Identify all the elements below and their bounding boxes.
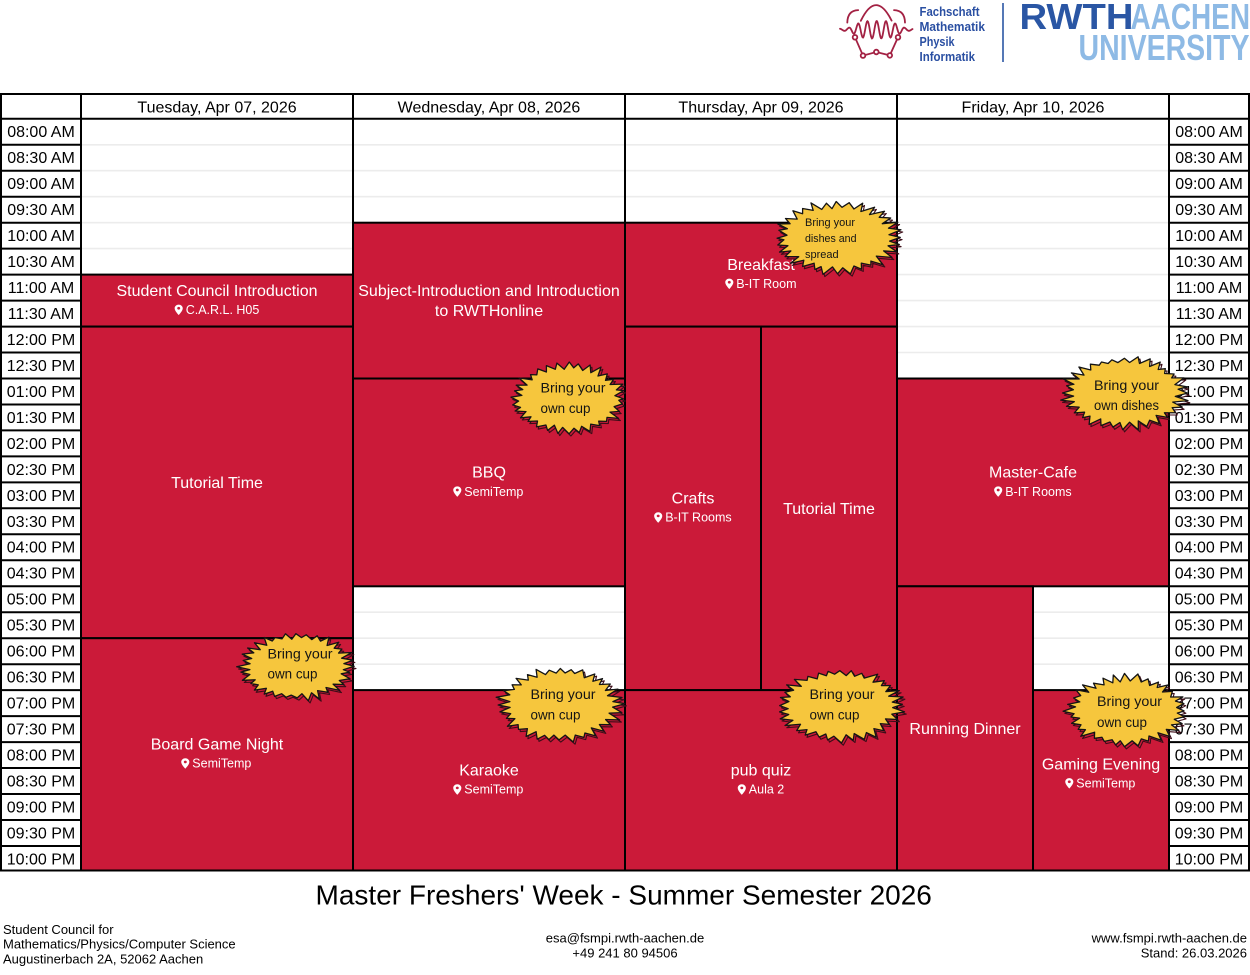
svg-text:Wednesday, Apr 08, 2026: Wednesday, Apr 08, 2026 xyxy=(398,99,581,116)
svg-text:Bring your: Bring your xyxy=(541,379,606,395)
svg-text:05:30 PM: 05:30 PM xyxy=(7,618,75,635)
svg-text:own cup: own cup xyxy=(268,666,318,682)
svg-text:SemiTemp: SemiTemp xyxy=(464,783,523,797)
svg-text:08:00 PM: 08:00 PM xyxy=(7,748,75,765)
svg-text:07:00 PM: 07:00 PM xyxy=(7,696,75,713)
svg-text:09:00 AM: 09:00 AM xyxy=(7,176,75,193)
svg-text:SemiTemp: SemiTemp xyxy=(464,485,523,499)
svg-text:Master-Cafe: Master-Cafe xyxy=(989,465,1077,482)
svg-text:SemiTemp: SemiTemp xyxy=(1076,777,1135,791)
svg-text:12:00 PM: 12:00 PM xyxy=(7,332,75,349)
svg-text:own cup: own cup xyxy=(810,706,860,722)
svg-text:Student Council Introduction: Student Council Introduction xyxy=(116,283,317,300)
svg-text:10:00 AM: 10:00 AM xyxy=(1175,228,1243,245)
svg-text:B-IT Rooms: B-IT Rooms xyxy=(1005,485,1071,499)
svg-text:Physik: Physik xyxy=(920,34,956,49)
svg-text:Tutorial Time: Tutorial Time xyxy=(783,501,875,518)
svg-text:07:30 PM: 07:30 PM xyxy=(7,722,75,739)
svg-text:09:30 PM: 09:30 PM xyxy=(7,825,75,842)
svg-text:Mathematik: Mathematik xyxy=(920,19,986,34)
svg-text:Tuesday, Apr 07, 2026: Tuesday, Apr 07, 2026 xyxy=(137,99,296,116)
svg-text:08:30 PM: 08:30 PM xyxy=(7,773,75,790)
svg-text:01:30 PM: 01:30 PM xyxy=(1175,410,1243,427)
svg-text:06:30 PM: 06:30 PM xyxy=(7,670,75,687)
svg-text:07:00 PM: 07:00 PM xyxy=(1175,696,1243,713)
svg-text:spread: spread xyxy=(805,249,839,261)
svg-text:03:30 PM: 03:30 PM xyxy=(1175,514,1243,531)
svg-text:Master Freshers' Week - Summer: Master Freshers' Week - Summer Semester … xyxy=(316,879,932,910)
svg-text:Karaoke: Karaoke xyxy=(459,763,519,780)
svg-text:Bring your: Bring your xyxy=(1097,693,1162,709)
svg-text:04:00 PM: 04:00 PM xyxy=(1175,540,1243,557)
svg-text:Thursday, Apr 09, 2026: Thursday, Apr 09, 2026 xyxy=(678,99,843,116)
svg-text:Informatik: Informatik xyxy=(920,49,976,64)
svg-text:05:00 PM: 05:00 PM xyxy=(1175,592,1243,609)
svg-text:09:00 AM: 09:00 AM xyxy=(1175,176,1243,193)
svg-text:Bring your: Bring your xyxy=(268,646,333,662)
svg-text:+49 241 80 94506: +49 241 80 94506 xyxy=(572,945,677,960)
svg-text:10:30 AM: 10:30 AM xyxy=(1175,254,1243,271)
svg-text:06:00 PM: 06:00 PM xyxy=(7,644,75,661)
svg-text:06:30 PM: 06:30 PM xyxy=(1175,670,1243,687)
svg-text:02:00 PM: 02:00 PM xyxy=(1175,436,1243,453)
svg-text:Running Dinner: Running Dinner xyxy=(909,721,1021,738)
svg-text:own cup: own cup xyxy=(531,706,581,722)
svg-text:01:30 PM: 01:30 PM xyxy=(7,410,75,427)
svg-text:06:00 PM: 06:00 PM xyxy=(1175,644,1243,661)
svg-text:Augustinerbach 2A, 52062 Aache: Augustinerbach 2A, 52062 Aachen xyxy=(3,952,203,967)
svg-text:B-IT Rooms: B-IT Rooms xyxy=(665,511,731,525)
svg-text:10:30 AM: 10:30 AM xyxy=(7,254,75,271)
svg-text:05:00 PM: 05:00 PM xyxy=(7,592,75,609)
svg-text:04:30 PM: 04:30 PM xyxy=(7,566,75,583)
svg-text:Student Council for: Student Council for xyxy=(3,922,114,937)
svg-text:04:00 PM: 04:00 PM xyxy=(7,540,75,557)
svg-text:Gaming Evening: Gaming Evening xyxy=(1042,757,1160,774)
svg-text:01:00 PM: 01:00 PM xyxy=(7,384,75,401)
svg-text:to RWTHonline: to RWTHonline xyxy=(435,303,543,320)
svg-text:Board Game Night: Board Game Night xyxy=(151,737,284,754)
svg-text:Bring your: Bring your xyxy=(810,686,875,702)
svg-text:12:30 PM: 12:30 PM xyxy=(7,358,75,375)
svg-text:own cup: own cup xyxy=(1097,714,1147,730)
svg-text:05:30 PM: 05:30 PM xyxy=(1175,618,1243,635)
svg-text:02:00 PM: 02:00 PM xyxy=(7,436,75,453)
svg-text:BBQ: BBQ xyxy=(472,465,506,482)
svg-text:own dishes: own dishes xyxy=(1094,397,1159,413)
svg-text:02:30 PM: 02:30 PM xyxy=(7,462,75,479)
svg-text:04:30 PM: 04:30 PM xyxy=(1175,566,1243,583)
svg-text:12:30 PM: 12:30 PM xyxy=(1175,358,1243,375)
svg-text:esa@fsmpi.rwth-aachen.de: esa@fsmpi.rwth-aachen.de xyxy=(546,931,704,946)
svg-text:03:00 PM: 03:00 PM xyxy=(7,488,75,505)
svg-text:12:00 PM: 12:00 PM xyxy=(1175,332,1243,349)
svg-text:C.A.R.L. H05: C.A.R.L. H05 xyxy=(186,303,260,317)
svg-text:08:30 AM: 08:30 AM xyxy=(7,150,75,167)
svg-text:Stand: 26.03.2026: Stand: 26.03.2026 xyxy=(1141,945,1247,960)
svg-text:Subject-Introduction and Intro: Subject-Introduction and Introduction xyxy=(358,283,620,300)
svg-text:09:30 PM: 09:30 PM xyxy=(1175,825,1243,842)
svg-text:Fachschaft: Fachschaft xyxy=(920,4,981,19)
svg-text:Bring your: Bring your xyxy=(531,686,596,702)
svg-text:Crafts: Crafts xyxy=(672,491,715,508)
svg-text:Tutorial Time: Tutorial Time xyxy=(171,475,263,492)
svg-text:www.fsmpi.rwth-aachen.de: www.fsmpi.rwth-aachen.de xyxy=(1091,931,1247,946)
svg-text:own cup: own cup xyxy=(541,400,591,416)
svg-text:SemiTemp: SemiTemp xyxy=(192,757,251,771)
svg-text:Friday, Apr 10, 2026: Friday, Apr 10, 2026 xyxy=(962,99,1105,116)
svg-text:09:00 PM: 09:00 PM xyxy=(7,799,75,816)
svg-text:08:00 AM: 08:00 AM xyxy=(1175,124,1243,141)
svg-text:03:30 PM: 03:30 PM xyxy=(7,514,75,531)
svg-text:B-IT Room: B-IT Room xyxy=(736,277,796,291)
svg-text:10:00 PM: 10:00 PM xyxy=(7,851,75,868)
svg-text:07:30 PM: 07:30 PM xyxy=(1175,722,1243,739)
svg-text:09:30 AM: 09:30 AM xyxy=(1175,202,1243,219)
svg-text:08:00 AM: 08:00 AM xyxy=(7,124,75,141)
svg-text:08:30 PM: 08:30 PM xyxy=(1175,773,1243,790)
svg-text:09:30 AM: 09:30 AM xyxy=(7,202,75,219)
svg-text:Bring your: Bring your xyxy=(1094,377,1159,393)
svg-text:Breakfast: Breakfast xyxy=(727,257,795,274)
svg-text:11:30 AM: 11:30 AM xyxy=(8,306,74,323)
svg-text:11:00 AM: 11:00 AM xyxy=(8,280,74,297)
svg-text:03:00 PM: 03:00 PM xyxy=(1175,488,1243,505)
svg-text:11:30 AM: 11:30 AM xyxy=(1176,306,1242,323)
svg-text:dishes and: dishes and xyxy=(805,233,857,245)
svg-text:Bring your: Bring your xyxy=(805,217,855,229)
svg-text:02:30 PM: 02:30 PM xyxy=(1175,462,1243,479)
svg-text:Aula 2: Aula 2 xyxy=(749,783,784,797)
svg-text:11:00 AM: 11:00 AM xyxy=(1176,280,1242,297)
svg-text:Mathematics/Physics/Computer S: Mathematics/Physics/Computer Science xyxy=(3,937,236,952)
svg-text:09:00 PM: 09:00 PM xyxy=(1175,799,1243,816)
svg-text:08:00 PM: 08:00 PM xyxy=(1175,748,1243,765)
svg-text:10:00 AM: 10:00 AM xyxy=(7,228,75,245)
svg-text:pub quiz: pub quiz xyxy=(731,763,792,780)
svg-text:08:30 AM: 08:30 AM xyxy=(1175,150,1243,167)
svg-text:10:00 PM: 10:00 PM xyxy=(1175,851,1243,868)
svg-text:UNIVERSITY: UNIVERSITY xyxy=(1079,27,1250,68)
